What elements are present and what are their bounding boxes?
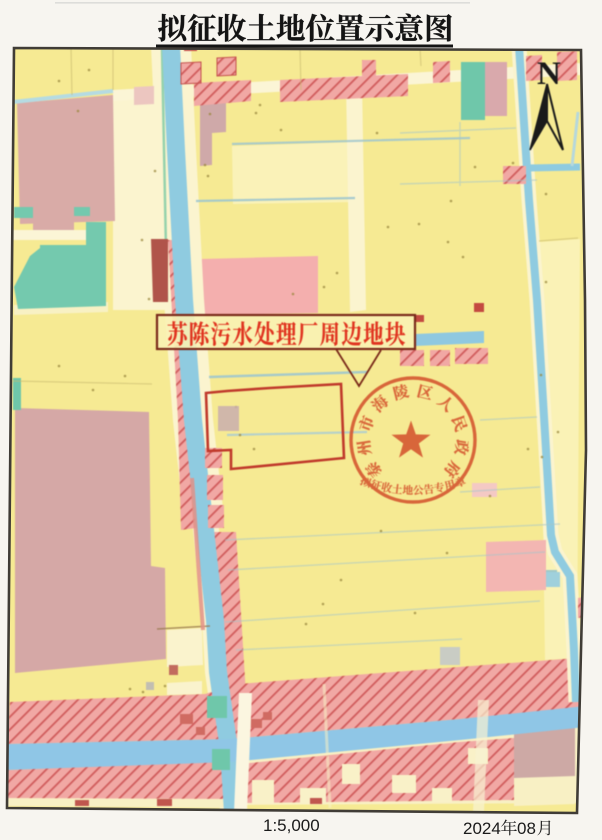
- svg-text:N: N: [537, 56, 561, 92]
- svg-text:2024: 2024: [463, 819, 501, 838]
- svg-text:1:5,000: 1:5,000: [263, 816, 320, 835]
- svg-text:08: 08: [517, 819, 536, 838]
